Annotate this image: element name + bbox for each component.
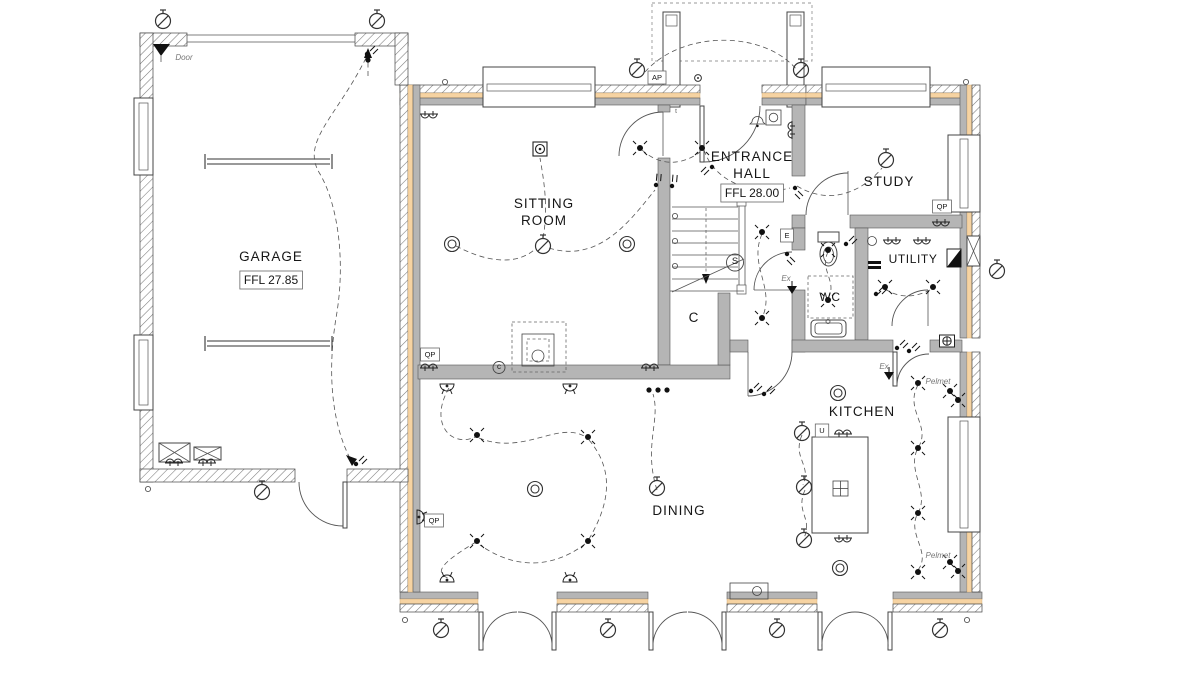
wall-segment <box>762 98 806 105</box>
porch-post-cap <box>666 15 677 26</box>
wc-name-label: WC <box>819 290 840 304</box>
french-door-leaf <box>722 612 726 650</box>
dot-symbol <box>365 57 370 62</box>
french-door-leaf <box>552 612 556 650</box>
wall-segment <box>960 352 967 417</box>
floor-plan-drawing: GARAGEFFL 27.85SITTINGROOMENTRANCEHALLFF… <box>0 0 1200 675</box>
e-tag-label: E <box>784 231 789 240</box>
wall-segment <box>718 293 730 365</box>
qp-3-label: QP <box>937 202 948 211</box>
wall-segment <box>140 33 153 98</box>
wall-segment <box>140 175 153 335</box>
pelmet-1-label: Pelmet <box>926 377 952 386</box>
wall-segment <box>893 599 982 604</box>
qp-2-label: QP <box>429 516 440 525</box>
wall-segment <box>557 592 648 599</box>
spur-symbol <box>940 335 955 347</box>
garage-name-label: GARAGE <box>239 249 303 264</box>
wall-segment <box>806 98 822 105</box>
t-mark-label: t <box>675 108 677 115</box>
wall-segment <box>418 365 730 379</box>
dining-name-label: DINING <box>652 503 705 518</box>
wall-segment <box>140 469 295 482</box>
wall-segment <box>930 98 962 105</box>
dot-symbol <box>646 387 651 392</box>
wall-segment <box>972 532 980 592</box>
wash-basin <box>811 320 846 337</box>
toilet-cistern <box>818 232 839 242</box>
wall-segment <box>557 604 648 612</box>
study-name-label: STUDY <box>864 174 915 189</box>
rear-door-leaf <box>893 352 897 386</box>
dot-symbol <box>664 387 669 392</box>
wall-segment <box>972 352 980 417</box>
wall-segment <box>893 592 982 599</box>
c-mark-label: c <box>497 362 501 371</box>
dot-symbol <box>655 387 660 392</box>
sitting-line2-label: ROOM <box>521 213 567 228</box>
wall-segment <box>792 215 805 228</box>
u-tag-label: U <box>819 426 824 435</box>
wall-segment <box>400 85 408 592</box>
wall-segment <box>400 592 478 599</box>
wall-segment <box>806 93 822 98</box>
wall-segment <box>972 212 980 338</box>
wall-segment <box>727 599 817 604</box>
floor-plan-page: GARAGEFFL 27.85SITTINGROOMENTRANCEHALLFF… <box>0 0 1200 675</box>
french-door-leaf <box>649 612 653 650</box>
toilet-bowl <box>820 242 837 266</box>
wall-segment <box>408 85 413 592</box>
wall-segment <box>930 93 962 98</box>
hall-line2-label: HALL <box>733 166 771 181</box>
flue-box <box>967 236 980 266</box>
wall-segment <box>595 85 700 93</box>
wall-segment <box>400 599 478 604</box>
kitchen-name-label: KITCHEN <box>829 404 895 419</box>
wall-segment <box>347 469 408 482</box>
smoke-s-label: S <box>732 256 738 267</box>
cutri-symbol <box>947 249 961 267</box>
garage-ffl-label: FFL 27.85 <box>244 273 299 287</box>
wall-segment <box>792 228 805 250</box>
front-door-leaf <box>700 106 704 162</box>
wall-segment <box>930 85 962 93</box>
ex-1-label: Ex <box>781 274 791 283</box>
hall-line1-label: ENTRANCE <box>711 149 793 164</box>
wall-segment <box>893 604 982 612</box>
wall-segment <box>960 212 967 338</box>
wall-segment <box>658 105 670 112</box>
wall-segment <box>730 340 748 352</box>
kitchen-island <box>812 437 868 533</box>
wall-segment <box>806 85 822 93</box>
garage-side-door-leaf <box>343 482 347 528</box>
wall-segment <box>972 85 980 135</box>
wall-segment <box>727 592 817 599</box>
utility-name-label: UTILITY <box>889 252 938 266</box>
wall-segment <box>967 212 972 338</box>
wall-segment <box>762 93 806 98</box>
wall-segment <box>557 599 648 604</box>
ap-tag-label: AP <box>652 73 662 82</box>
wall-segment <box>658 158 670 365</box>
qp-1-label: QP <box>425 350 436 359</box>
wall-segment <box>855 228 868 340</box>
hall-ffl-label: FFL 28.00 <box>725 186 780 200</box>
sitting-line1-label: SITTING <box>514 196 574 211</box>
wall-segment <box>967 352 972 417</box>
wall-segment <box>727 604 817 612</box>
door-note-label: Door <box>175 53 193 62</box>
wall-segment <box>960 532 967 592</box>
wall-segment <box>792 340 893 352</box>
porch-post-cap <box>790 15 801 26</box>
wall-segment <box>967 532 972 592</box>
wall-segment <box>595 93 700 98</box>
wall-segment <box>960 85 967 135</box>
wall-segment <box>400 604 478 612</box>
pelmet-2-label: Pelmet <box>926 551 952 560</box>
cupboard-c-label: C <box>689 310 700 325</box>
ex-2-label: Ex <box>879 362 889 371</box>
wall-segment <box>967 85 972 135</box>
wall-segment <box>762 85 806 93</box>
wall-segment <box>595 98 700 105</box>
french-door-leaf <box>479 612 483 650</box>
newel-post <box>737 285 746 294</box>
wall-segment <box>792 105 805 176</box>
wall-segment <box>395 33 408 85</box>
